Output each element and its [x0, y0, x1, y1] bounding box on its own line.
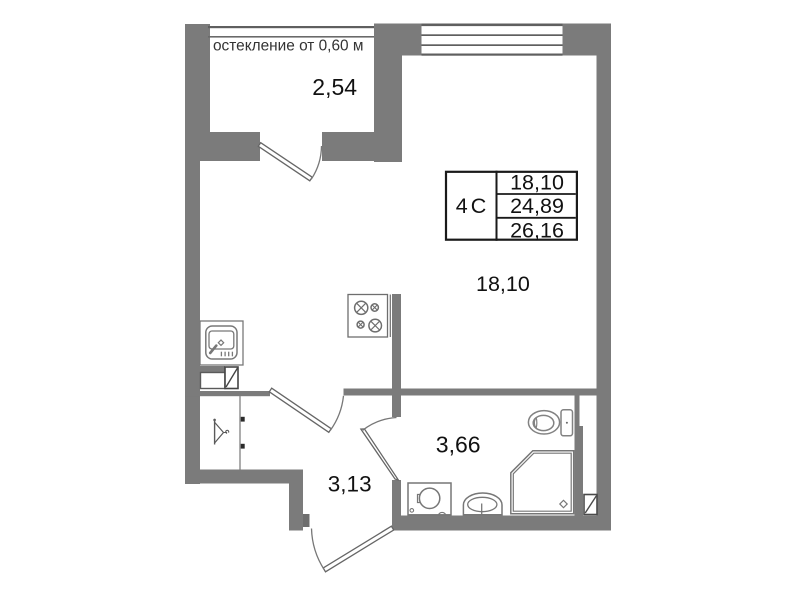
- svg-text:24,89: 24,89: [510, 194, 564, 218]
- svg-text:3,66: 3,66: [436, 432, 481, 458]
- svg-text:3,13: 3,13: [328, 471, 372, 496]
- svg-text:18,10: 18,10: [510, 170, 564, 194]
- svg-text:18,10: 18,10: [476, 272, 530, 296]
- svg-text:2,54: 2,54: [312, 74, 357, 100]
- svg-text:остекление от 0,60 м: остекление от 0,60 м: [213, 38, 363, 55]
- svg-text:26,16: 26,16: [510, 219, 564, 243]
- svg-text:4C: 4C: [456, 194, 489, 218]
